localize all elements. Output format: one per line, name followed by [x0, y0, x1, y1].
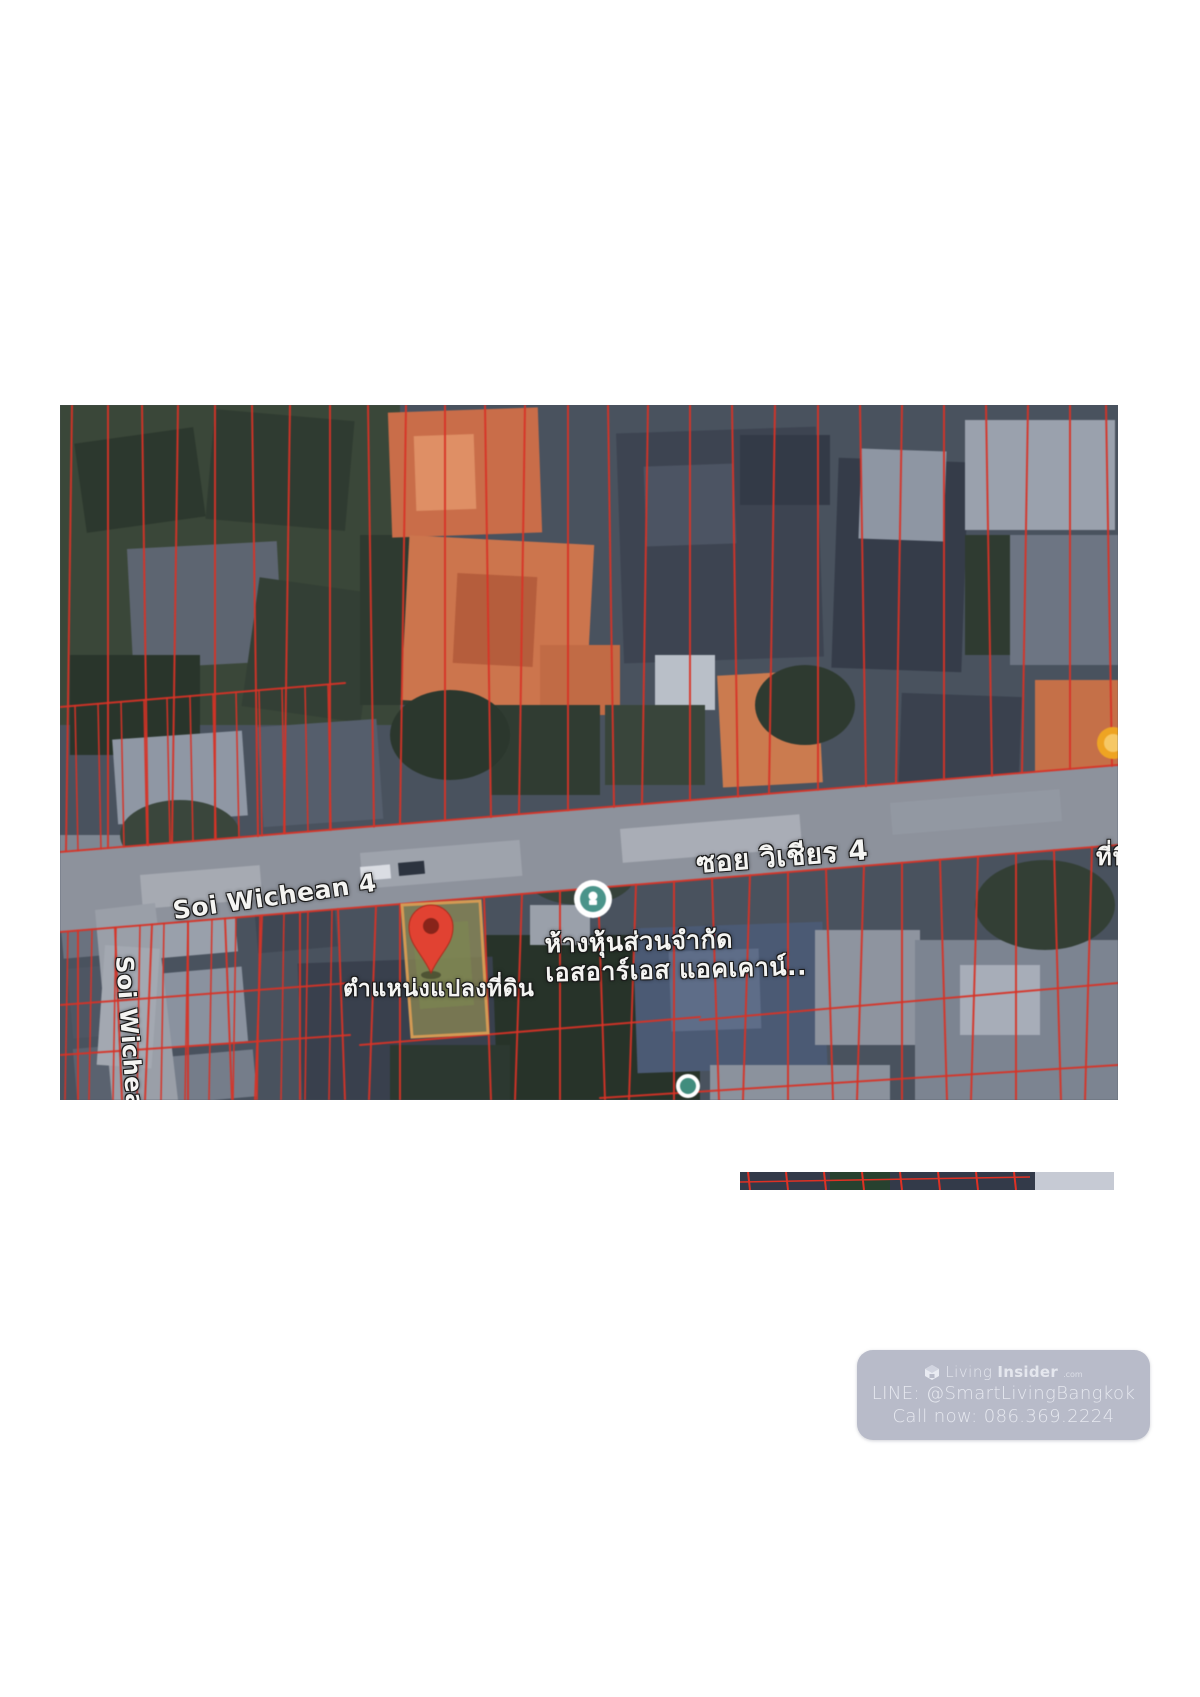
satellite-map-image: ซอย วิเชียร 4 Soi Wichean 4 Soi Wichean … — [60, 405, 1118, 1100]
pin-caption-label: ตำแหน่งแปลงที่ดิน — [343, 971, 534, 1007]
brand-suffix: Insider — [997, 1363, 1058, 1381]
house-cube-icon — [924, 1365, 940, 1380]
page: { "map": { "labels": { "street_thai": "ซ… — [0, 0, 1200, 1697]
map-edge-sliver — [740, 1172, 1114, 1190]
watermark-card: LivingInsider .com LINE: @SmartLivingBan… — [857, 1350, 1150, 1440]
business-poi-label: ห้างหุ้นส่วนจำกัด เอสอาร์เอส แอคเคาน์.. — [544, 923, 807, 988]
phone-contact: Call now: 086.369.2224 — [892, 1406, 1114, 1427]
brand-tld: .com — [1063, 1370, 1083, 1379]
sliver-layer — [740, 1172, 1114, 1190]
brand-logo: LivingInsider .com — [924, 1363, 1082, 1381]
brand-prefix: Living — [945, 1363, 992, 1381]
edge-partial-label: ที่นี่ — [1096, 837, 1118, 876]
terrain-layer — [60, 405, 1118, 1100]
satellite-layer — [60, 405, 1118, 1100]
line-contact: LINE: @SmartLivingBangkok — [872, 1383, 1136, 1404]
